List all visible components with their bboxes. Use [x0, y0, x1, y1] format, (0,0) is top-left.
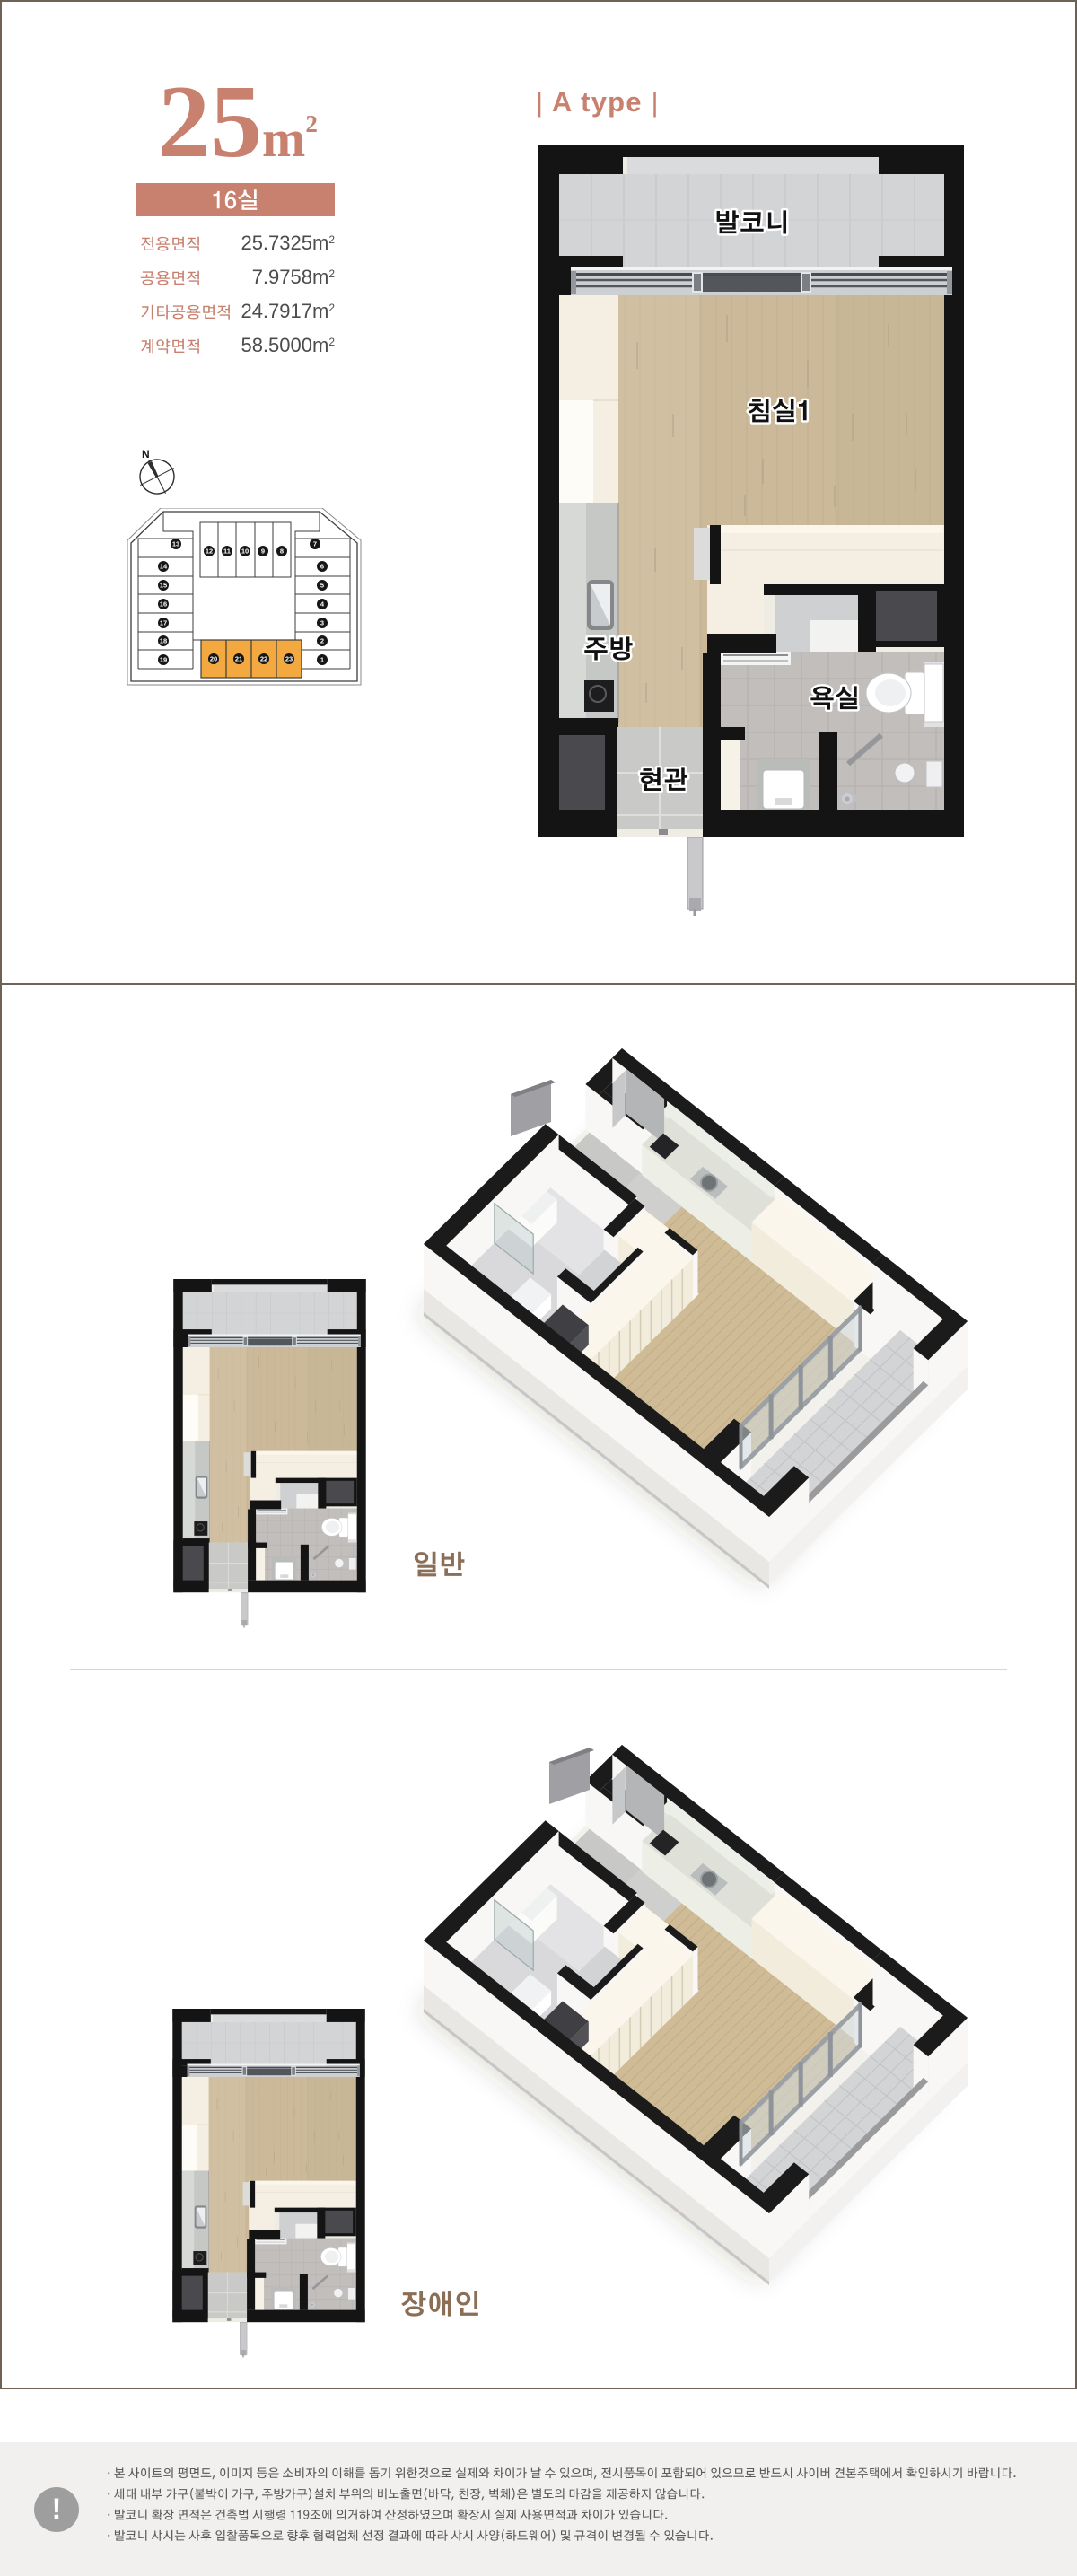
- svg-text:9: 9: [261, 548, 265, 556]
- svg-text:5: 5: [320, 582, 324, 590]
- svg-text:7: 7: [313, 540, 317, 548]
- svg-text:18: 18: [160, 637, 167, 645]
- svg-text:22: 22: [260, 655, 267, 663]
- svg-text:13: 13: [172, 540, 179, 548]
- svg-text:15: 15: [160, 582, 167, 590]
- svg-text:23: 23: [285, 655, 293, 663]
- svg-text:3: 3: [320, 619, 324, 627]
- svg-text:12: 12: [206, 548, 213, 556]
- svg-text:10: 10: [241, 548, 249, 556]
- svg-text:8: 8: [280, 548, 284, 556]
- svg-text:2: 2: [320, 637, 324, 645]
- svg-text:21: 21: [235, 655, 242, 663]
- svg-text:N: N: [142, 448, 150, 460]
- svg-text:20: 20: [210, 655, 217, 663]
- svg-text:1: 1: [320, 656, 324, 664]
- svg-text:19: 19: [160, 656, 167, 664]
- svg-text:14: 14: [160, 563, 168, 571]
- svg-text:6: 6: [320, 563, 324, 571]
- svg-text:17: 17: [160, 619, 167, 627]
- svg-text:16: 16: [160, 600, 167, 609]
- svg-text:11: 11: [223, 548, 231, 556]
